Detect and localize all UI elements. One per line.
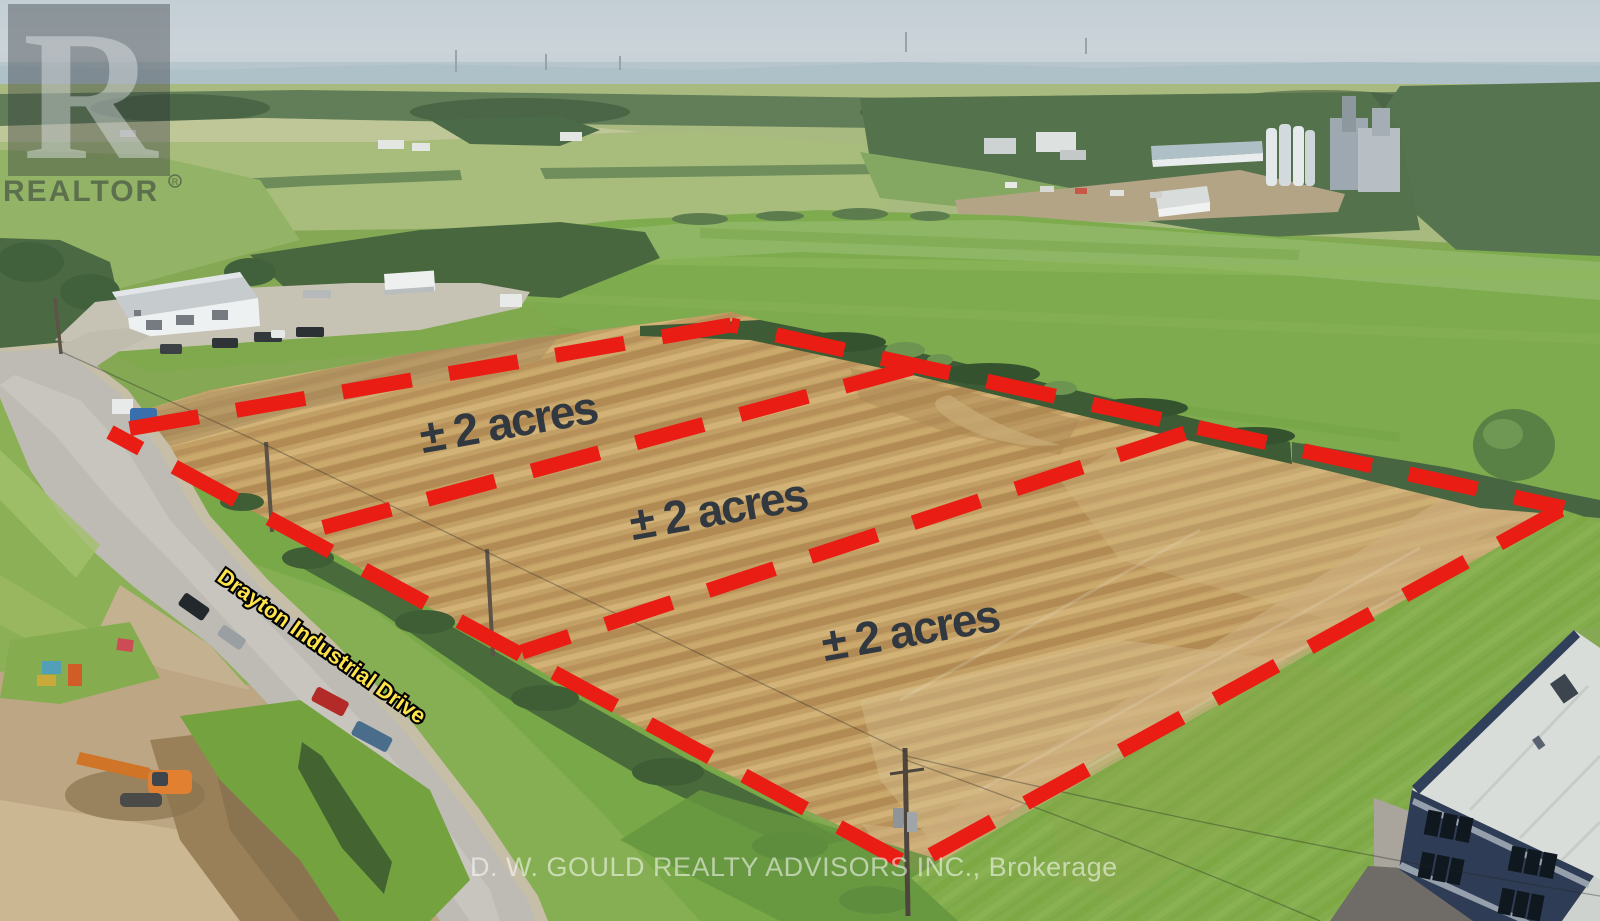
svg-text:R: R [172,177,179,187]
svg-text:R: R [23,0,159,199]
svg-text:D. W. GOULD REALTY ADVISORS IN: D. W. GOULD REALTY ADVISORS INC., Broker… [470,852,1118,882]
svg-text:REALTOR: REALTOR [3,175,159,208]
